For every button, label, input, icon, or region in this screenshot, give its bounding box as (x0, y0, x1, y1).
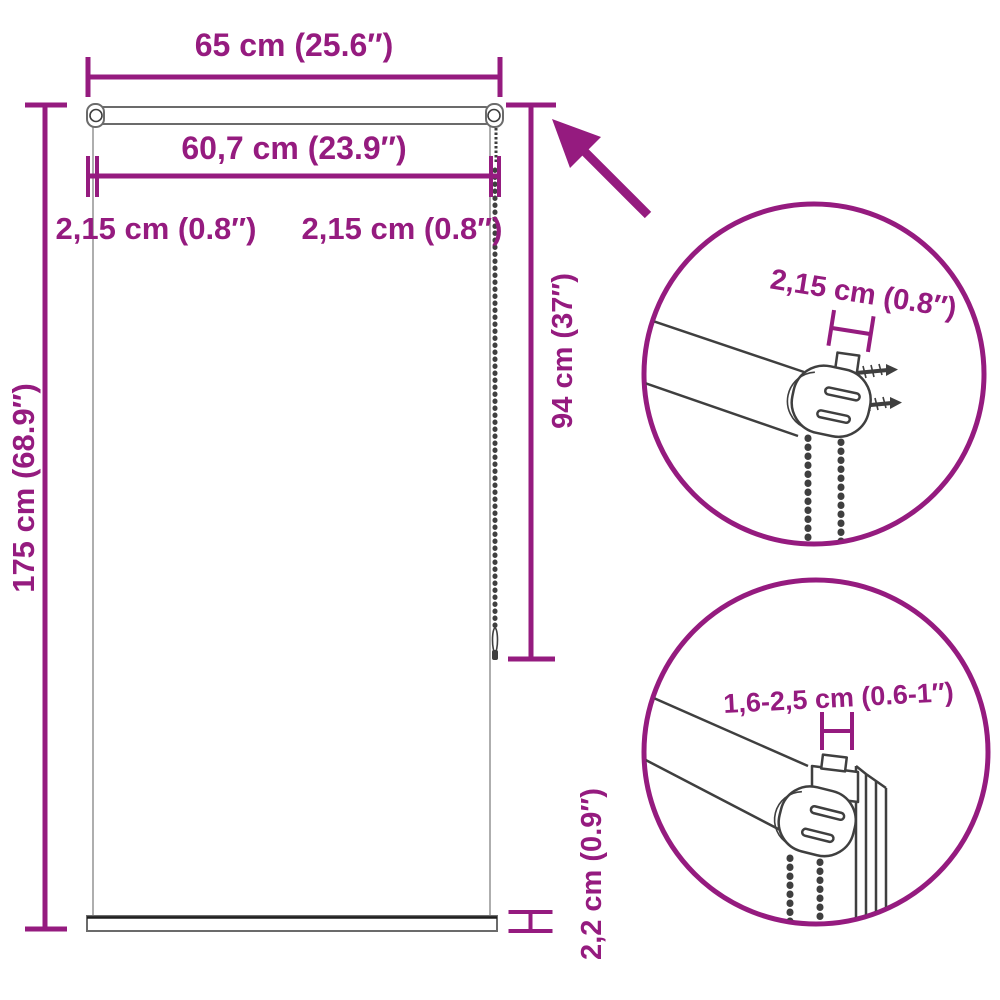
dimension-total-width: 65 cm (25.6″) (88, 27, 500, 97)
window-frame (856, 766, 886, 920)
detail-top-label: 2,15 cm (0.8″) (768, 264, 959, 325)
detail-circle-top: 2,15 cm (0.8″) (636, 204, 984, 548)
dimension-chain-length: 94 cm (37″) (506, 105, 579, 659)
total-height-label: 175 cm (68.9″) (6, 383, 41, 593)
dimension-bottom-bar: 2,2 cm (0.9″) (509, 788, 609, 960)
bottom-bar-label: 2,2 cm (0.9″) (576, 788, 608, 960)
detail-circle-bottom: 1,6-2,5 cm (0.6-1″) (638, 580, 988, 925)
screw-icon (856, 364, 898, 378)
chain-loop-end (493, 628, 498, 652)
total-width-label: 65 cm (25.6″) (195, 27, 394, 63)
zoom-arrow-icon (552, 119, 648, 215)
detail-top-art (636, 316, 902, 548)
diagram-canvas: 65 cm (25.6″) 60,7 cm (23.9″) 2,15 cm (0… (0, 0, 1000, 1000)
side-gap-right-label: 2,15 cm (0.8″) (302, 211, 503, 246)
fabric-width-label: 60,7 cm (23.9″) (181, 130, 406, 166)
detail-bottom-label: 1,6-2,5 cm (0.6-1″) (723, 677, 955, 719)
detail-bottom-art (638, 692, 886, 925)
roller-tube (101, 107, 488, 124)
product-dimension-diagram: 65 cm (25.6″) 60,7 cm (23.9″) 2,15 cm (0… (0, 0, 1000, 1000)
detail-bottom-outline (644, 580, 988, 924)
chain-connector (492, 650, 498, 660)
clamp-lip (821, 755, 847, 772)
side-gap-left-label: 2,15 cm (0.8″) (56, 211, 257, 246)
chain-length-label: 94 cm (37″) (547, 273, 579, 429)
detail-top-bracket (828, 310, 873, 352)
detail-bottom-bracket (822, 712, 852, 750)
